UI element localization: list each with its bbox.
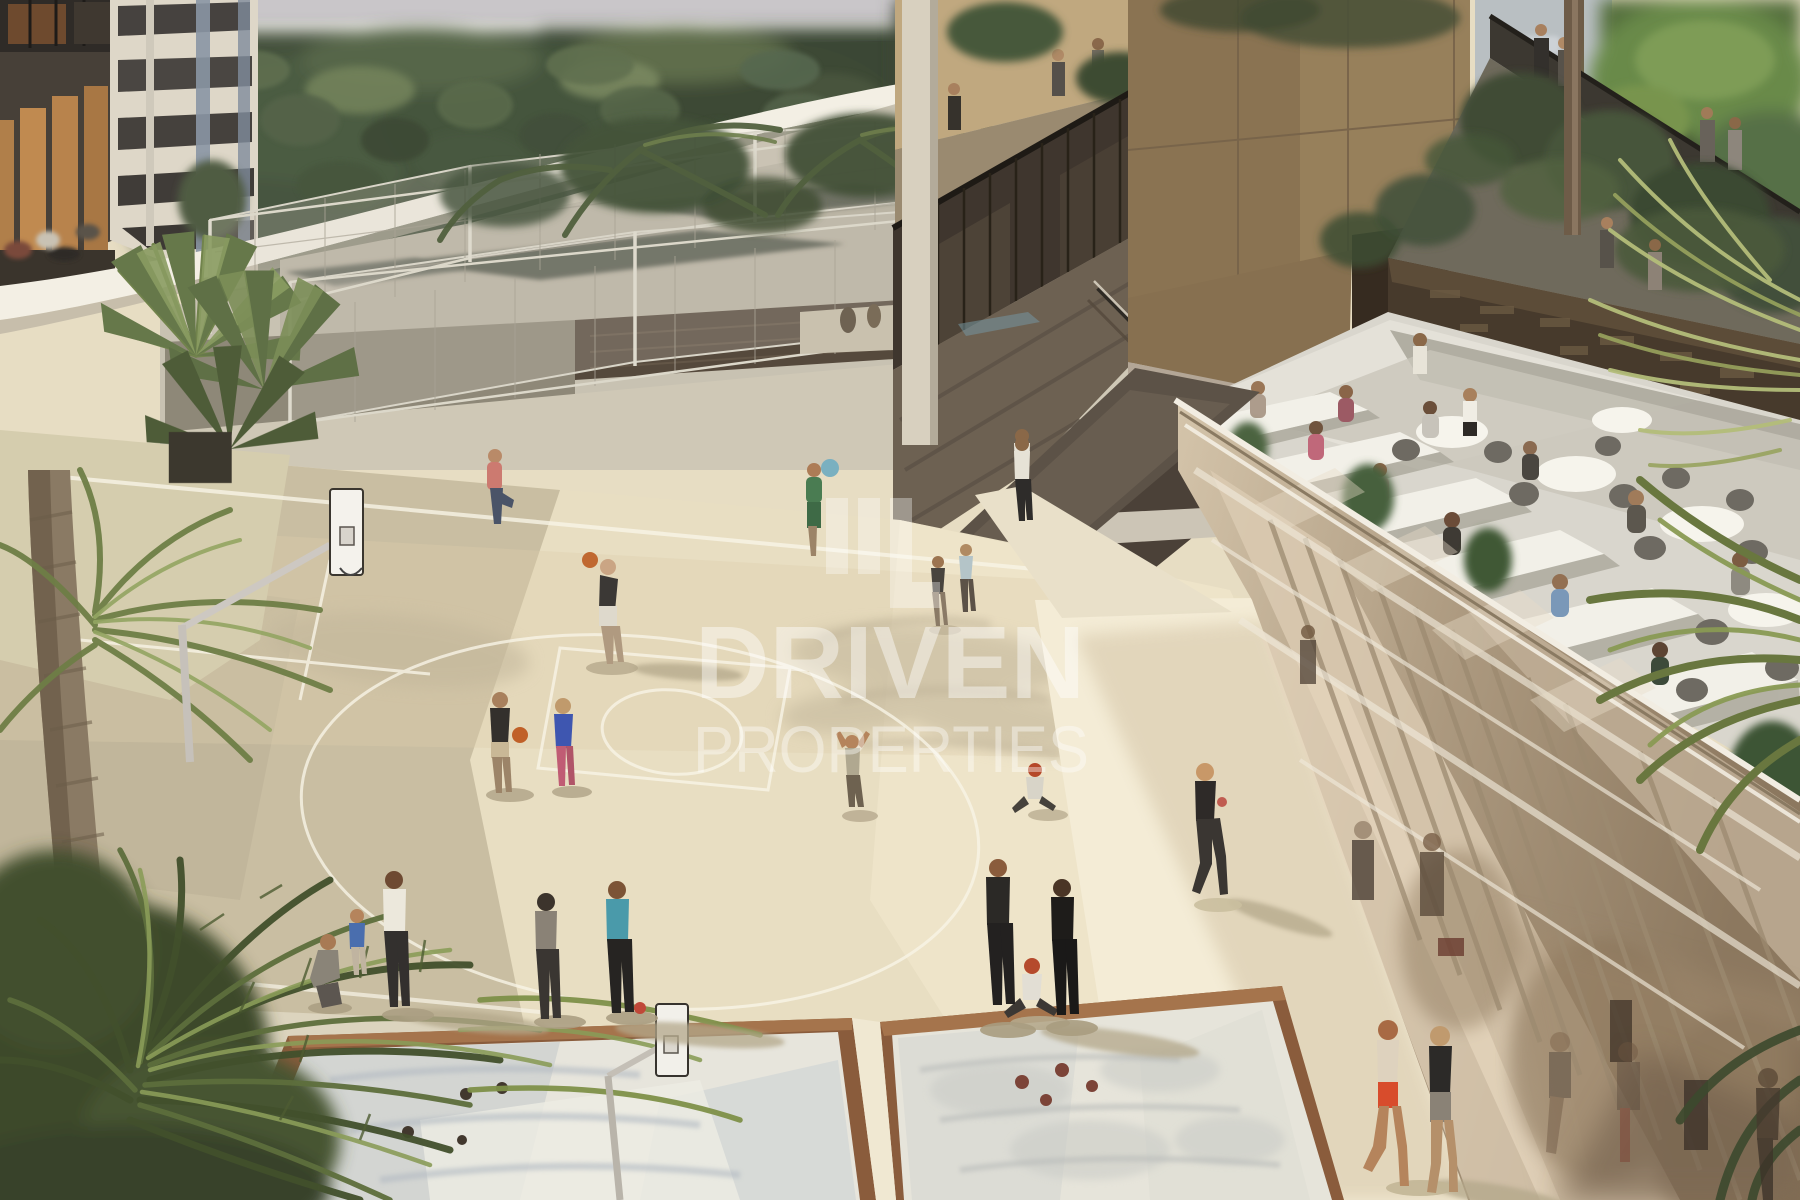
svg-text:DRIVEN: DRIVEN	[695, 605, 1085, 720]
svg-text:PROPERTIES: PROPERTIES	[693, 712, 1089, 786]
